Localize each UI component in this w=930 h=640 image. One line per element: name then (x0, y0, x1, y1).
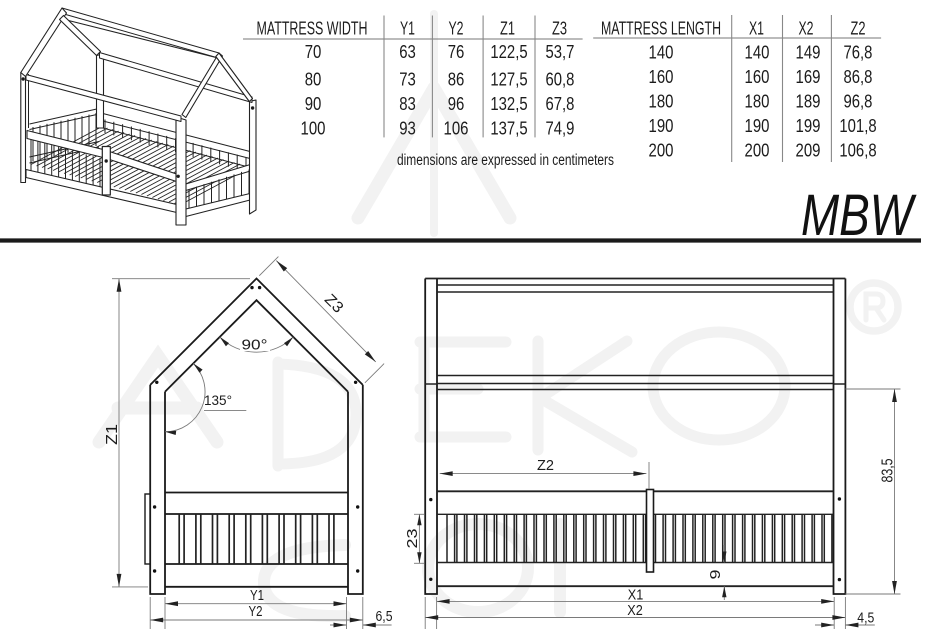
svg-text:149: 149 (796, 41, 821, 62)
svg-text:96: 96 (448, 93, 465, 114)
svg-text:67,8: 67,8 (546, 93, 575, 114)
svg-text:Y1: Y1 (400, 18, 415, 39)
svg-text:83,5: 83,5 (880, 459, 897, 483)
svg-text:83: 83 (399, 93, 416, 114)
svg-text:Y1: Y1 (250, 588, 264, 604)
svg-text:180: 180 (745, 90, 770, 111)
svg-text:Y2: Y2 (449, 18, 464, 39)
svg-text:140: 140 (745, 41, 770, 62)
svg-text:73: 73 (399, 68, 416, 89)
svg-text:137,5: 137,5 (490, 117, 527, 138)
svg-text:9: 9 (707, 570, 724, 580)
svg-text:X1: X1 (749, 18, 764, 39)
svg-text:127,5: 127,5 (490, 68, 527, 89)
svg-text:53,7: 53,7 (546, 41, 575, 62)
svg-text:180: 180 (649, 90, 674, 111)
svg-text:Z2: Z2 (851, 18, 866, 39)
svg-text:86: 86 (448, 68, 465, 89)
svg-text:6,5: 6,5 (376, 609, 393, 625)
svg-text:200: 200 (649, 139, 674, 160)
svg-text:106,8: 106,8 (839, 139, 876, 160)
svg-text:X2: X2 (799, 18, 814, 39)
svg-text:135°: 135° (204, 392, 232, 408)
svg-text:76: 76 (448, 41, 465, 62)
svg-text:Z3: Z3 (552, 18, 567, 39)
svg-text:80: 80 (305, 68, 322, 89)
svg-text:96,8: 96,8 (844, 90, 873, 111)
svg-text:190: 190 (649, 115, 674, 136)
svg-text:90: 90 (305, 93, 322, 114)
svg-text:160: 160 (649, 66, 674, 87)
svg-text:23: 23 (404, 529, 421, 549)
svg-text:X2: X2 (627, 603, 643, 619)
svg-text:122,5: 122,5 (490, 41, 527, 62)
svg-text:86,8: 86,8 (844, 66, 873, 87)
svg-text:X1: X1 (628, 587, 644, 603)
svg-text:MBW: MBW (801, 183, 917, 248)
svg-text:MATTRESS LENGTH: MATTRESS LENGTH (601, 18, 721, 39)
svg-text:dimensions are expressed in ce: dimensions are expressed in centimeters (397, 152, 614, 169)
svg-text:190: 190 (745, 115, 770, 136)
svg-text:Z2: Z2 (537, 457, 554, 474)
svg-text:Y2: Y2 (249, 604, 263, 620)
svg-text:132,5: 132,5 (490, 93, 527, 114)
svg-text:140: 140 (649, 41, 674, 62)
svg-text:93: 93 (399, 117, 416, 138)
svg-text:Z1: Z1 (500, 18, 515, 39)
svg-text:209: 209 (796, 139, 821, 160)
svg-text:Z1: Z1 (104, 424, 121, 445)
svg-text:90°: 90° (242, 337, 268, 354)
svg-text:74,9: 74,9 (546, 117, 575, 138)
svg-text:160: 160 (745, 66, 770, 87)
svg-text:70: 70 (305, 41, 322, 62)
svg-text:106: 106 (444, 117, 469, 138)
svg-text:63: 63 (399, 41, 416, 62)
svg-text:169: 169 (796, 66, 821, 87)
svg-text:76,8: 76,8 (844, 41, 873, 62)
svg-text:200: 200 (745, 139, 770, 160)
svg-text:MATTRESS WIDTH: MATTRESS WIDTH (257, 18, 368, 39)
svg-text:60,8: 60,8 (546, 68, 575, 89)
svg-text:4,5: 4,5 (857, 611, 874, 627)
svg-text:199: 199 (796, 115, 821, 136)
svg-text:100: 100 (301, 117, 326, 138)
svg-text:189: 189 (796, 90, 821, 111)
svg-text:101,8: 101,8 (839, 115, 876, 136)
